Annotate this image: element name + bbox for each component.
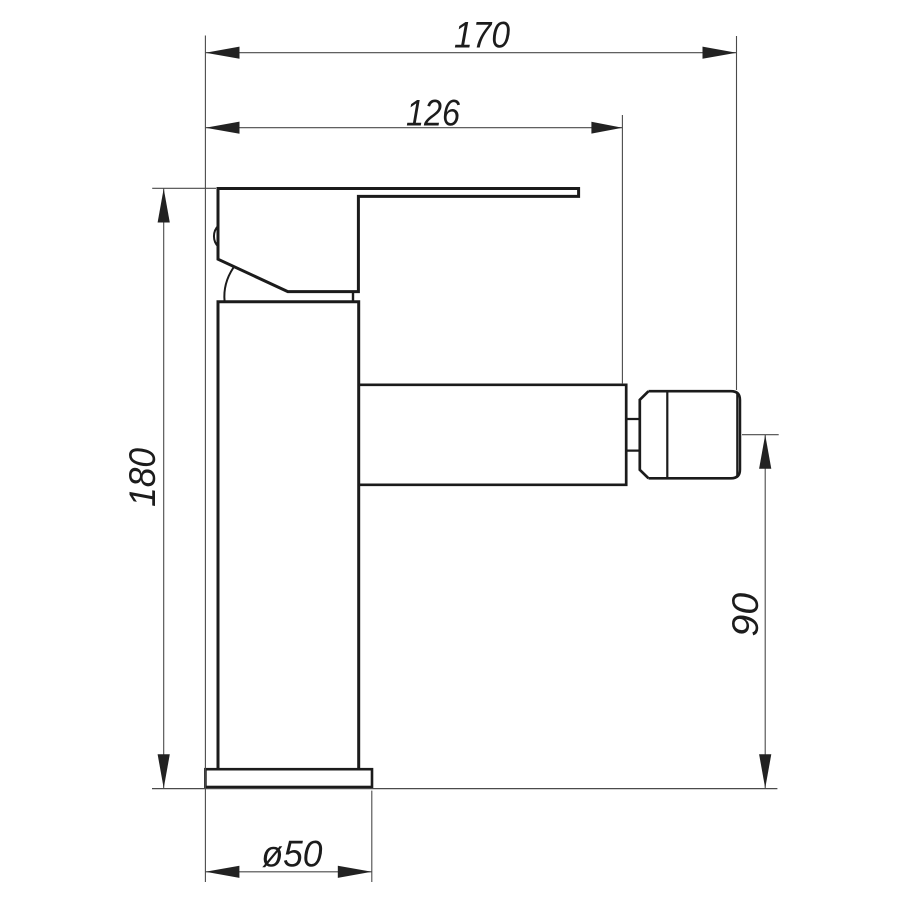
svg-text:90: 90: [725, 592, 766, 636]
svg-text:170: 170: [454, 15, 510, 56]
svg-text:ø50: ø50: [262, 834, 323, 875]
svg-text:180: 180: [122, 447, 163, 506]
svg-text:126: 126: [406, 93, 460, 134]
